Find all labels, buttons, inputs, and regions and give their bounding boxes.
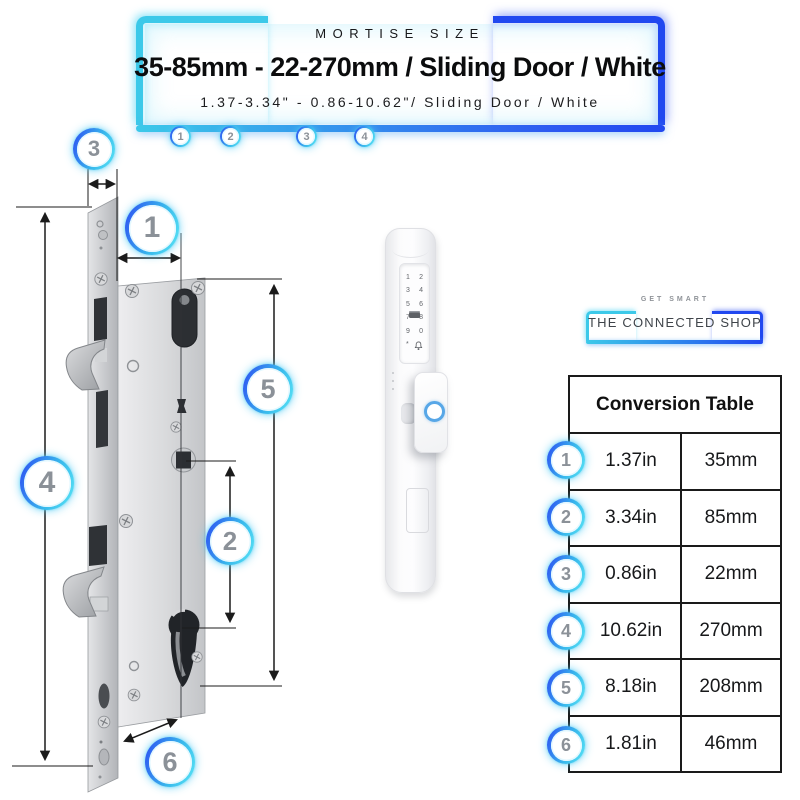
side-dot bbox=[392, 388, 394, 390]
logo-frame-bottom bbox=[586, 340, 763, 344]
keypad-key: 1 bbox=[406, 274, 410, 281]
doorbell-icon bbox=[414, 341, 423, 353]
product-infographic: MORTISE SIZE 35-85mm - 22-270mm / Slidin… bbox=[0, 0, 800, 800]
star-key: * bbox=[406, 341, 409, 353]
table-row: 1.81in46mm bbox=[570, 715, 780, 772]
inches-cell: 8.18in bbox=[570, 660, 682, 715]
keypad: 12 34 56 78 90 * bbox=[399, 263, 430, 364]
table-row: 1.37in35mm bbox=[570, 434, 780, 489]
dimension-callout-3: 3 bbox=[73, 128, 115, 170]
keypad-key: 9 bbox=[406, 328, 410, 335]
mm-cell: 208mm bbox=[682, 660, 780, 715]
table-row: 0.86in22mm bbox=[570, 545, 780, 602]
side-dot bbox=[392, 380, 394, 382]
dimension-callout-2: 2 bbox=[206, 517, 254, 565]
keypad-key: 5 bbox=[406, 301, 410, 308]
inches-cell: 10.62in bbox=[570, 604, 682, 659]
row-number-badge-6: 6 bbox=[547, 726, 585, 764]
mm-cell: 270mm bbox=[682, 604, 780, 659]
keypad-row: 90 bbox=[406, 328, 423, 335]
smart-lock-handle-image: 12 34 56 78 90 * bbox=[385, 228, 436, 593]
keycard-icon bbox=[409, 311, 420, 318]
keypad-row: 12 bbox=[406, 274, 423, 281]
dimension-callout-4: 4 bbox=[20, 456, 74, 510]
table-row: 3.34in85mm bbox=[570, 489, 780, 546]
keypad-key: 3 bbox=[406, 287, 410, 294]
keypad-key: 6 bbox=[419, 301, 423, 308]
brand-name: THE CONNECTED SHOP bbox=[586, 315, 764, 330]
row-number-badge-3: 3 bbox=[547, 555, 585, 593]
inches-cell: 0.86in bbox=[570, 547, 682, 602]
side-dot bbox=[392, 372, 394, 374]
dimension-callout-6: 6 bbox=[145, 737, 195, 787]
inches-cell: 3.34in bbox=[570, 491, 682, 546]
keypad-key: 2 bbox=[419, 274, 423, 281]
row-number-badge-5: 5 bbox=[547, 669, 585, 707]
battery-cover bbox=[406, 488, 429, 533]
dimension-callout-5: 5 bbox=[243, 364, 293, 414]
row-number-badge-2: 2 bbox=[547, 498, 585, 536]
keypad-row: 34 bbox=[406, 287, 423, 294]
keypad-row: 56 bbox=[406, 301, 423, 308]
fingerprint-ring bbox=[424, 401, 445, 422]
mm-cell: 22mm bbox=[682, 547, 780, 602]
inches-cell: 1.81in bbox=[570, 717, 682, 772]
keypad-row: * bbox=[406, 341, 423, 353]
mm-cell: 46mm bbox=[682, 717, 780, 772]
conversion-table-title: Conversion Table bbox=[570, 377, 780, 434]
lock-illustration bbox=[63, 197, 205, 792]
row-number-badge-4: 4 bbox=[547, 612, 585, 650]
inches-cell: 1.37in bbox=[570, 434, 682, 489]
mm-cell: 85mm bbox=[682, 491, 780, 546]
mm-cell: 35mm bbox=[682, 434, 780, 489]
conversion-table: Conversion Table 1.37in35mm 3.34in85mm 0… bbox=[568, 375, 782, 773]
row-number-badge-1: 1 bbox=[547, 441, 585, 479]
keypad-key: 0 bbox=[419, 328, 423, 335]
keypad-key: 4 bbox=[419, 287, 423, 294]
table-row: 10.62in270mm bbox=[570, 602, 780, 659]
table-row: 8.18in208mm bbox=[570, 658, 780, 715]
dimension-callout-1: 1 bbox=[125, 201, 179, 255]
brand-tagline: GET SMART bbox=[586, 296, 764, 303]
